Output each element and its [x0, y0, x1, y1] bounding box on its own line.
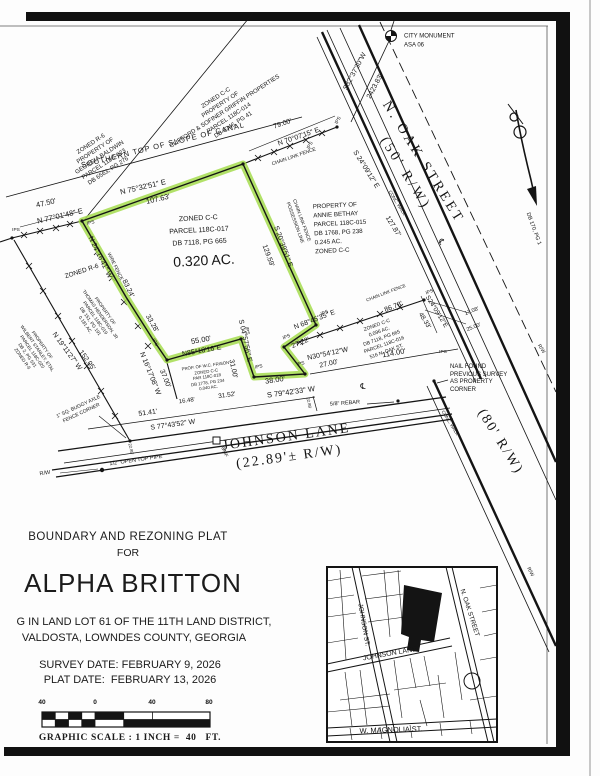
parcel-label-118c-015: PROPERTY OF ANNIE BETHAY PARCEL 118C-015… [313, 201, 368, 258]
scale-tick: 80 [199, 699, 219, 706]
scale-tick: 0 [85, 699, 105, 706]
scale-caption: GRAPHIC SCALE : 1 INCH = 40 FT. [30, 733, 230, 743]
centerline-symbol: ℄ [360, 382, 365, 392]
scale-bar [42, 712, 210, 727]
n-oak-street-lines [317, 22, 556, 652]
plat-date: PLAT DATE: FEBRUARY 13, 2026 [10, 674, 250, 686]
north-arrow-icon [508, 104, 537, 206]
city-monument-label: CITY MONUMENT [404, 33, 455, 41]
scale-tick: 40 [32, 699, 52, 706]
plat-owner-name: ALPHA BRITTON [8, 568, 258, 599]
map-label: R/W [39, 470, 51, 478]
parcel-label-118c-017: ZONED C-C PARCEL 118C-017 DB 7118, PG 66… [168, 212, 229, 251]
map-label: IPS [242, 327, 249, 336]
subject-parcel-area: 0.320 AC. [173, 251, 235, 272]
map-label: IPS [439, 350, 447, 356]
city-monument-symbol [386, 21, 397, 42]
plat-location-line1: G IN LAND LOT 61 OF THE 11TH LAND DISTRI… [4, 616, 284, 628]
city-monument-id: ASA 06 [404, 42, 424, 50]
plat-location-line2: VALDOSTA, LOWNDES COUNTY, GEORGIA [4, 632, 264, 644]
survey-date: SURVEY DATE: FEBRUARY 9, 2026 [10, 659, 250, 671]
nail-found-note: NAIL FOUND PREVIOUS SURVEY AS PROPERTY C… [450, 364, 507, 394]
map-label: IPS [12, 228, 20, 234]
scale-tick: 40 [142, 699, 162, 706]
plat-page: CITY MONUMENTASA 06S32°37'30"W2423.83'N.… [0, 0, 600, 776]
plat-title-line2: FOR [18, 547, 238, 559]
plat-title-line1: BOUNDARY AND REZONING PLAT [18, 531, 238, 543]
